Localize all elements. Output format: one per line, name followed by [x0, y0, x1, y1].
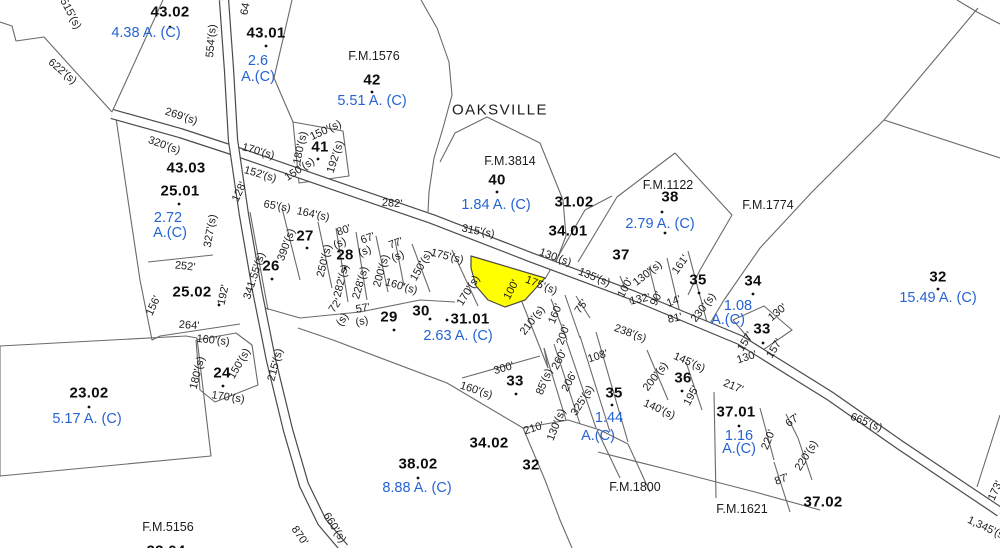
lot-number-label: 40 [488, 173, 505, 188]
lot-number-label: 35 [689, 273, 706, 288]
lot-number-label: 33 [753, 322, 770, 337]
dimension-label: (s) [355, 315, 370, 328]
acreage-label: 1.84 A. (C) [461, 198, 530, 213]
lot-number-label: 24 [213, 366, 230, 381]
lot-number-label: 43.02 [150, 5, 189, 20]
acreage-label: A.(C) [581, 429, 615, 444]
parcel-dot [317, 158, 320, 161]
parcel-dot [88, 406, 91, 409]
fm-reference-label: F.M.1576 [348, 50, 399, 63]
lot-number-label: 37 [612, 248, 629, 263]
parcel-dot [306, 247, 309, 250]
parcel-dot [762, 342, 765, 345]
acreage-label: A.(C) [153, 226, 187, 241]
lot-number-label: 32 [929, 270, 946, 285]
dimension-label: 282' [381, 198, 402, 210]
lot-number-label: 23.04 [146, 544, 185, 548]
parcel-dot [752, 293, 755, 296]
parcel-dot [178, 203, 181, 206]
tax-parcel-map: 515'(s)622'(s)43.024.38 A. (C)554'(s)644… [0, 0, 1000, 548]
lot-number-label: 34 [744, 274, 761, 289]
boundary-line [523, 428, 572, 548]
dimension-label: 252' [174, 260, 195, 273]
lot-number-label: 25.01 [160, 184, 199, 199]
lot-number-label: 23.02 [69, 386, 108, 401]
boundary-line [440, 117, 566, 262]
lot-number-label: 35 [605, 386, 622, 401]
acreage-label: 2.72 [154, 211, 182, 226]
acreage-label: 5.51 A. (C) [337, 94, 406, 109]
lot-number-label: 37.02 [803, 495, 842, 510]
boundary-line [977, 415, 1000, 487]
lot-number-label: 38 [661, 190, 678, 205]
parcel-dot [611, 404, 614, 407]
boundary-line [421, 0, 452, 212]
lot-number-label: 25.02 [172, 285, 211, 300]
parcel-dot [681, 390, 684, 393]
lot-number-label: 31.01 [450, 312, 489, 327]
lot-number-label: 27 [296, 229, 313, 244]
parcel-dot [661, 211, 664, 214]
lot-number-label: 29 [380, 310, 397, 325]
lot-number-label: 42 [363, 73, 380, 88]
parcel-dot [393, 329, 396, 332]
fm-reference-label: F.M.5156 [142, 521, 193, 534]
acreage-label: 2.6 [248, 54, 268, 69]
lot-number-label: 43.03 [166, 161, 205, 176]
boundary-line [274, 0, 293, 122]
lot-number-label: 34.02 [469, 436, 508, 451]
lot-number-label: 37.01 [716, 405, 755, 420]
acreage-label: A.(C) [722, 442, 756, 457]
dimension-label: 64 [240, 2, 253, 16]
lot-number-label: 31.02 [554, 195, 593, 210]
acreage-label: 2.79 A. (C) [625, 217, 694, 232]
parcel-dot [222, 385, 225, 388]
acreage-label: 8.88 A. (C) [382, 481, 451, 496]
acreage-label: 15.49 A. (C) [899, 291, 976, 306]
parcel-dot [446, 319, 449, 322]
lot-number-label: 32 [522, 458, 539, 473]
lot-number-label: 38.02 [398, 457, 437, 472]
parcel-dot [664, 232, 667, 235]
parcel-dot [698, 292, 701, 295]
fm-reference-label: F.M.1621 [716, 503, 767, 516]
fm-reference-label: F.M.1800 [609, 481, 660, 494]
parcel-dot [271, 278, 274, 281]
parcel-dot [515, 393, 518, 396]
lot-number-label: 43.01 [246, 26, 285, 41]
lot-number-label: 33 [506, 374, 523, 389]
boundary-line [884, 120, 1000, 158]
fm-reference-label: F.M.1774 [742, 199, 793, 212]
lot-number-label: 34.01 [548, 224, 587, 239]
fm-reference-label: F.M.3814 [484, 155, 535, 168]
acreage-label: 2.63 A. (C) [423, 329, 492, 344]
acreage-label: 1.44 [595, 411, 623, 426]
dimension-label: 264' [178, 320, 199, 332]
acreage-label: 5.17 A. (C) [52, 412, 121, 427]
lot-number-label: 30 [412, 304, 429, 319]
map-geometry [0, 0, 1000, 548]
lot-number-label: 41 [311, 140, 328, 155]
acreage-label: A.(C) [711, 313, 745, 328]
boundary-line [957, 0, 1000, 24]
boundary-line [0, 336, 211, 476]
acreage-label: A.(C) [241, 70, 275, 85]
place-name-label: OAKSVILLE [452, 103, 548, 118]
parcel-dot [496, 191, 499, 194]
lot-number-label: 36 [674, 371, 691, 386]
parcel-dot [265, 45, 268, 48]
acreage-label: 4.38 A. (C) [111, 26, 180, 41]
